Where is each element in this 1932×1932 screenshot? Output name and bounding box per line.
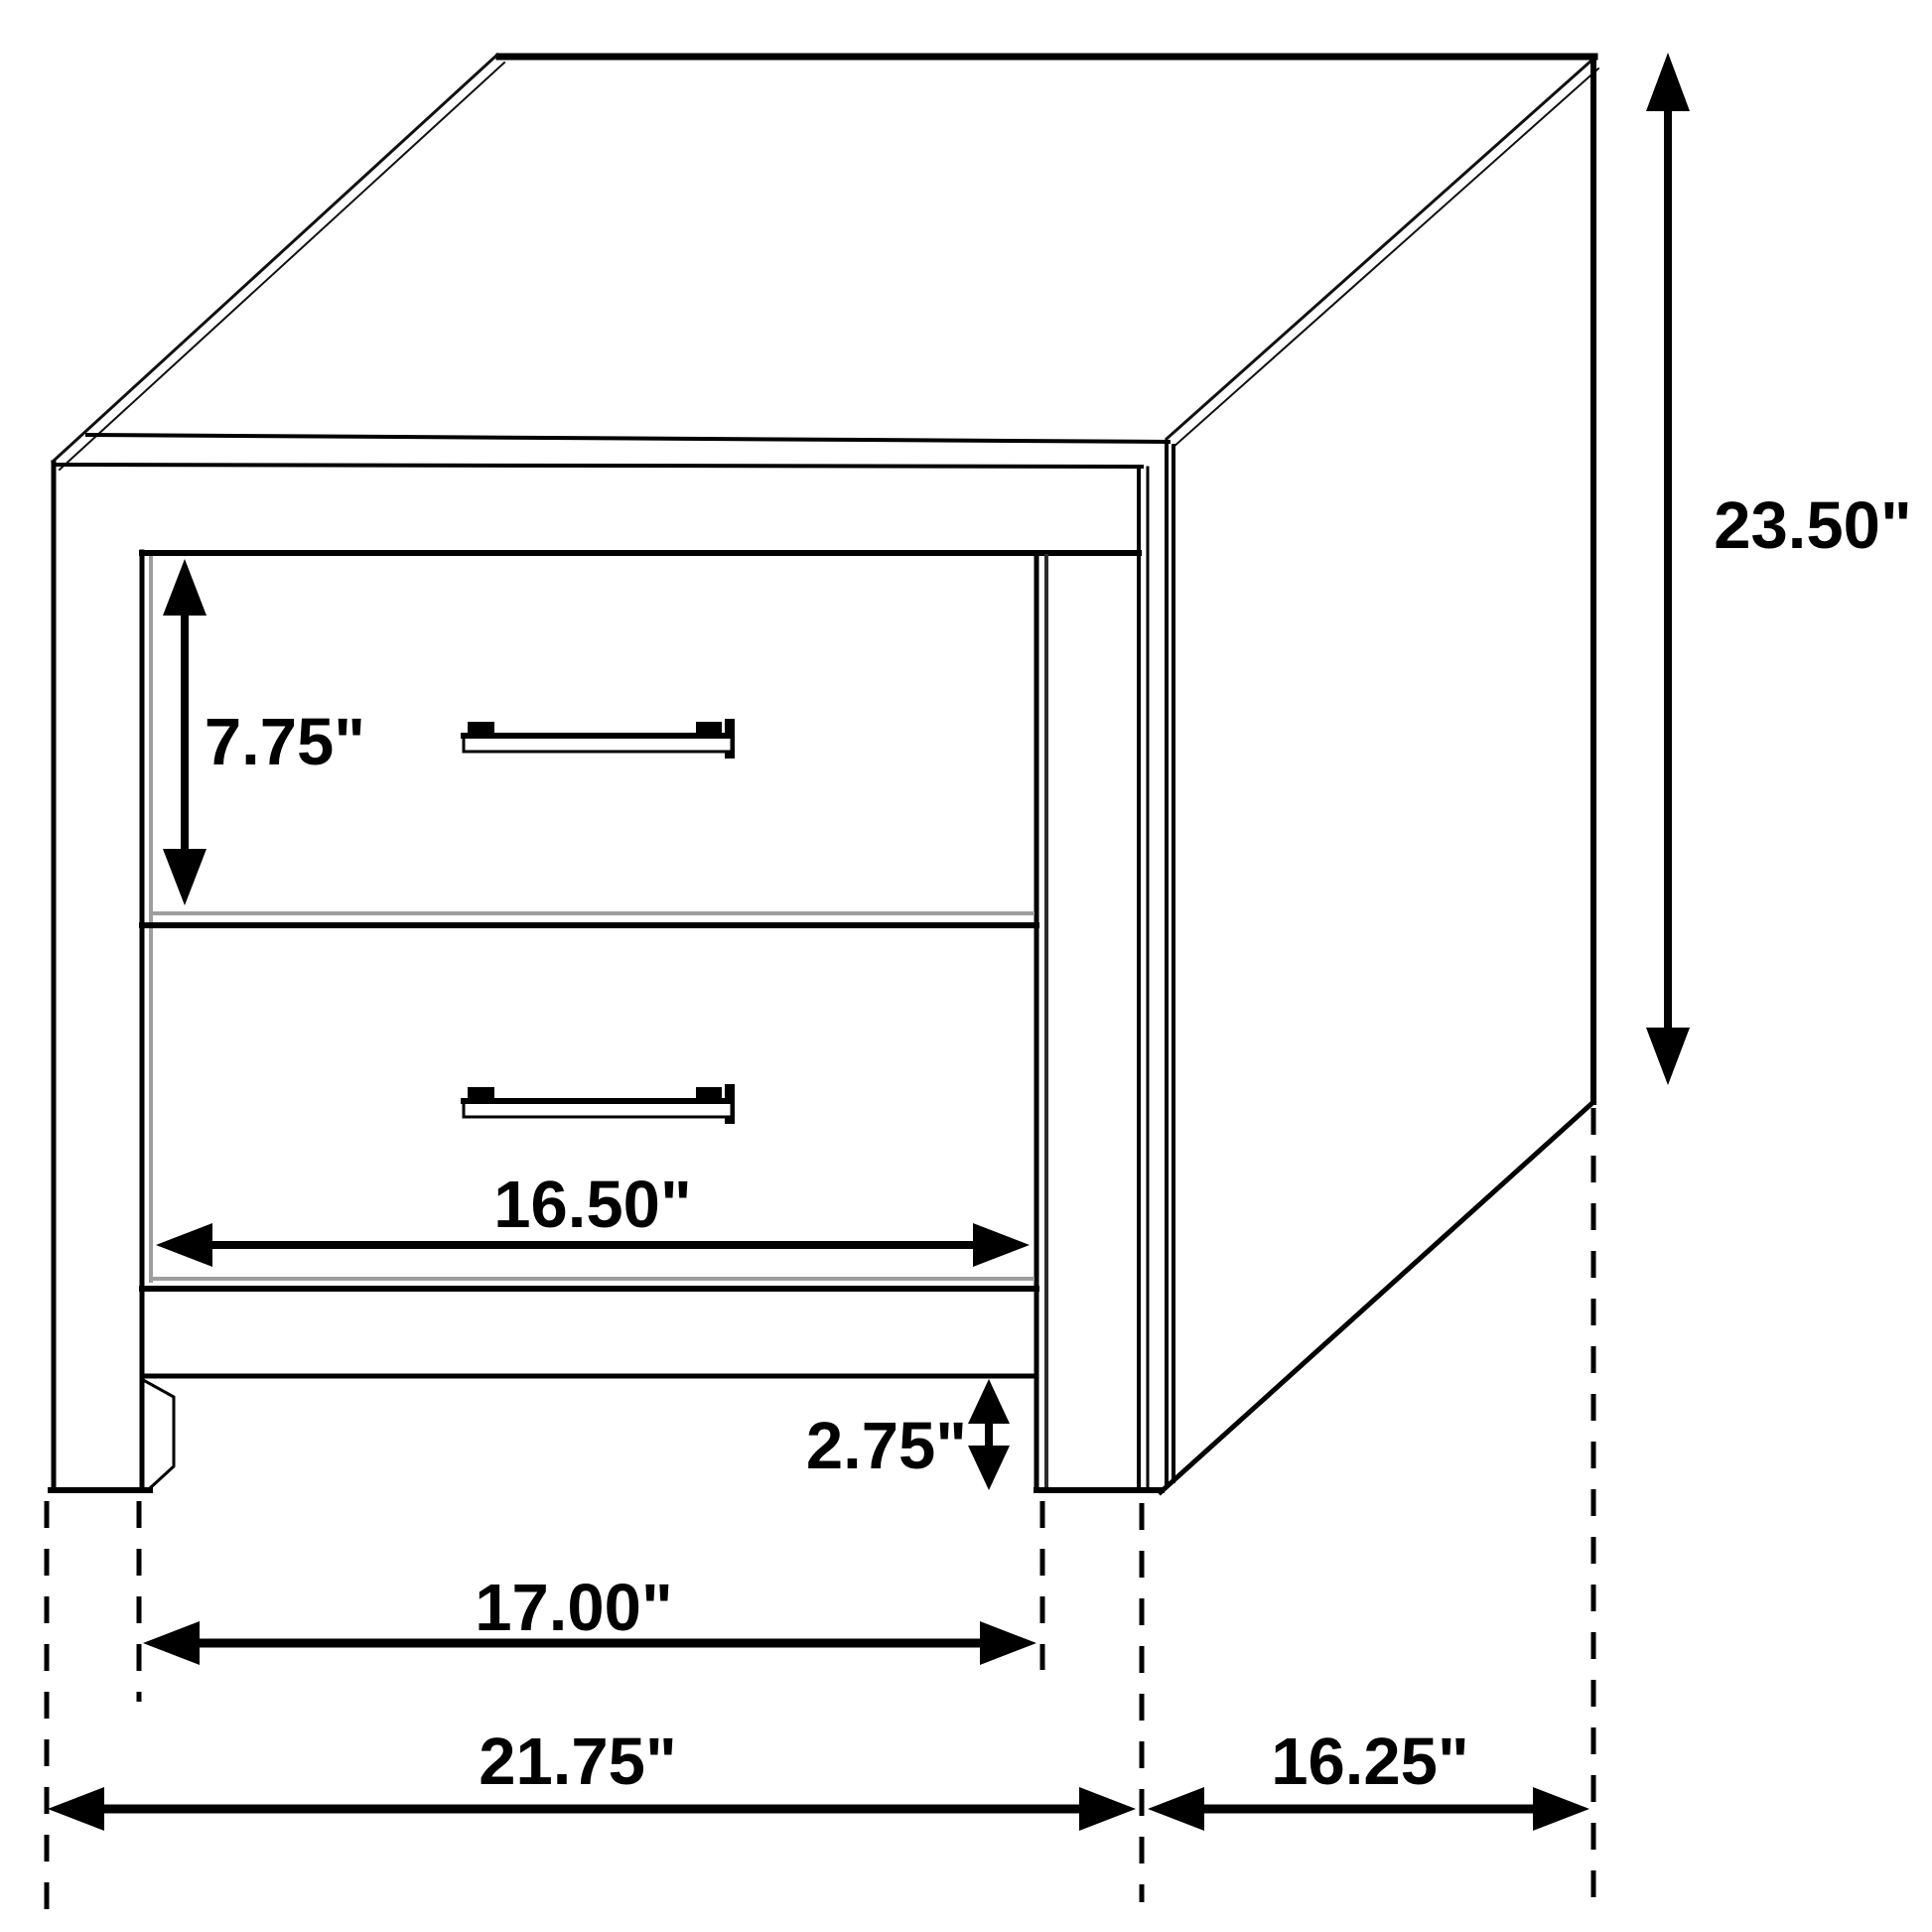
dim-label-leg-clearance: 2.75"	[806, 1409, 967, 1483]
dim-label-overall-width: 21.75"	[479, 1725, 676, 1799]
top-slab-bottom-edge	[55, 465, 1142, 467]
furniture-dimension-diagram: 7.75" 23.50" 16.50" 2.75" 17	[0, 0, 1932, 1932]
dim-label-width-between-legs: 17.00"	[475, 1571, 672, 1645]
dim-label-drawer-height: 7.75"	[205, 705, 365, 779]
dim-label-overall-height: 23.50"	[1714, 488, 1911, 563]
dim-label-depth: 16.25"	[1271, 1725, 1468, 1799]
dim-label-drawer-width: 16.50"	[493, 1168, 691, 1242]
